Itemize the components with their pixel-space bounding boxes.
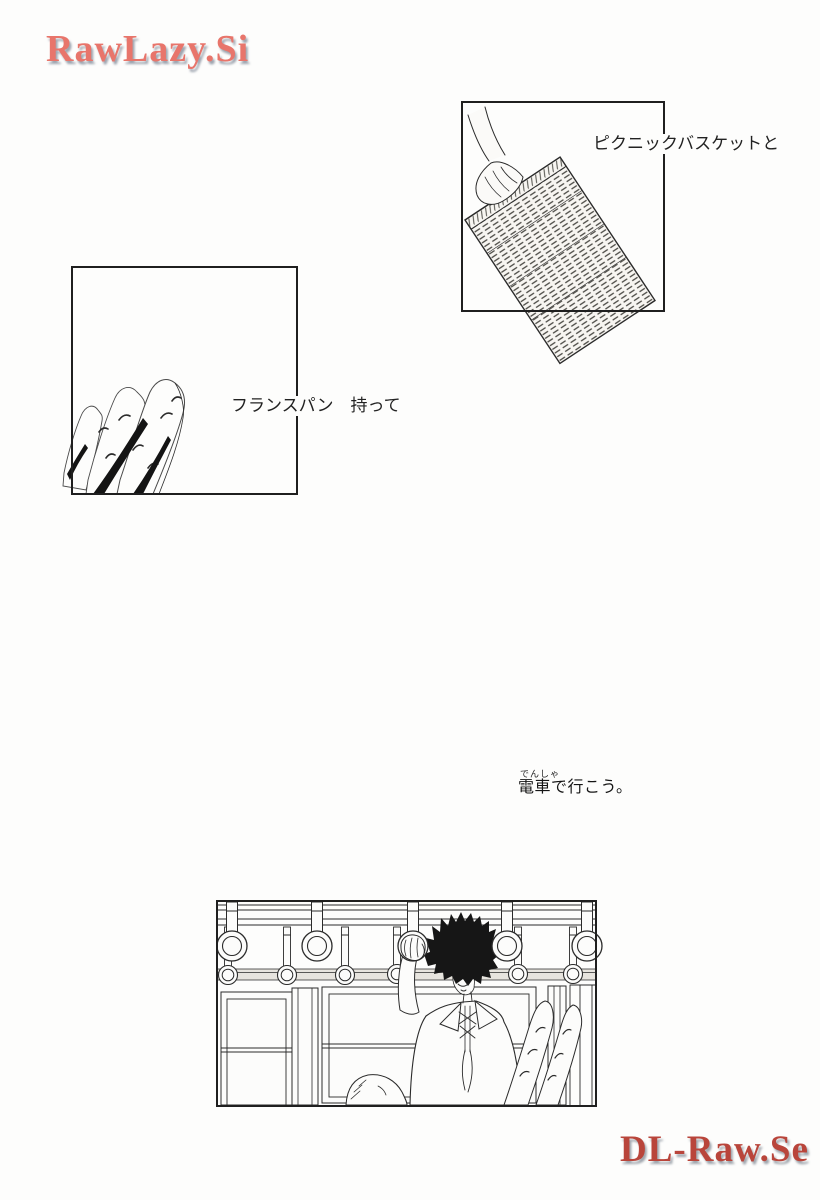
train-interior-drawing [218,902,595,1105]
panel-train-interior [218,902,595,1105]
caption-picnic-basket: ピクニックバスケットと [591,134,781,154]
site-watermark-bottom: DL-Raw.Se [620,1131,809,1168]
baguettes-drawing [73,268,296,493]
narration-text: 電車で行こう。 [518,780,633,796]
panel-baguettes [73,268,296,493]
manga-page: RawLazy.Si [0,0,820,1200]
site-watermark-top: RawLazy.Si [46,30,249,68]
caption-baguettes: フランスパン 持って [229,396,403,416]
narration-train: でんしゃ 電車で行こう。 [518,770,633,796]
narration-furigana: でんしゃ [520,770,633,779]
